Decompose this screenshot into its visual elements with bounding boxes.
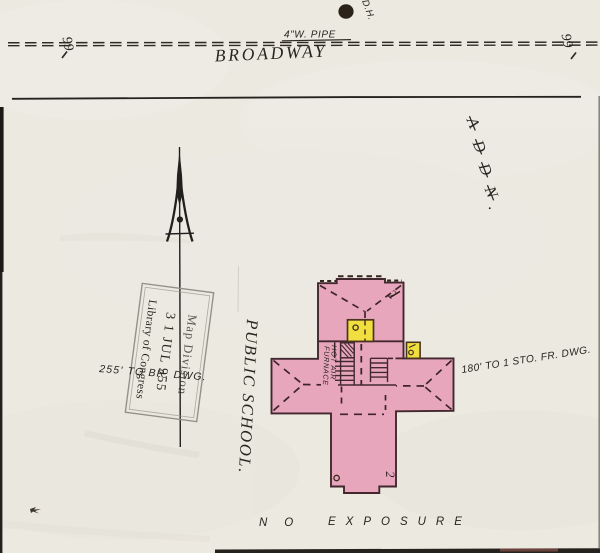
svg-text:FURNACE: FURNACE bbox=[321, 346, 331, 386]
svg-text:NO: NO bbox=[259, 517, 310, 529]
svg-text:2: 2 bbox=[383, 471, 397, 478]
svg-text:EXPOSURE: EXPOSURE bbox=[328, 516, 472, 528]
svg-text:4"W. PIPE: 4"W. PIPE bbox=[284, 30, 336, 41]
svg-text:66: 66 bbox=[560, 33, 577, 49]
svg-text:66: 66 bbox=[61, 36, 78, 52]
